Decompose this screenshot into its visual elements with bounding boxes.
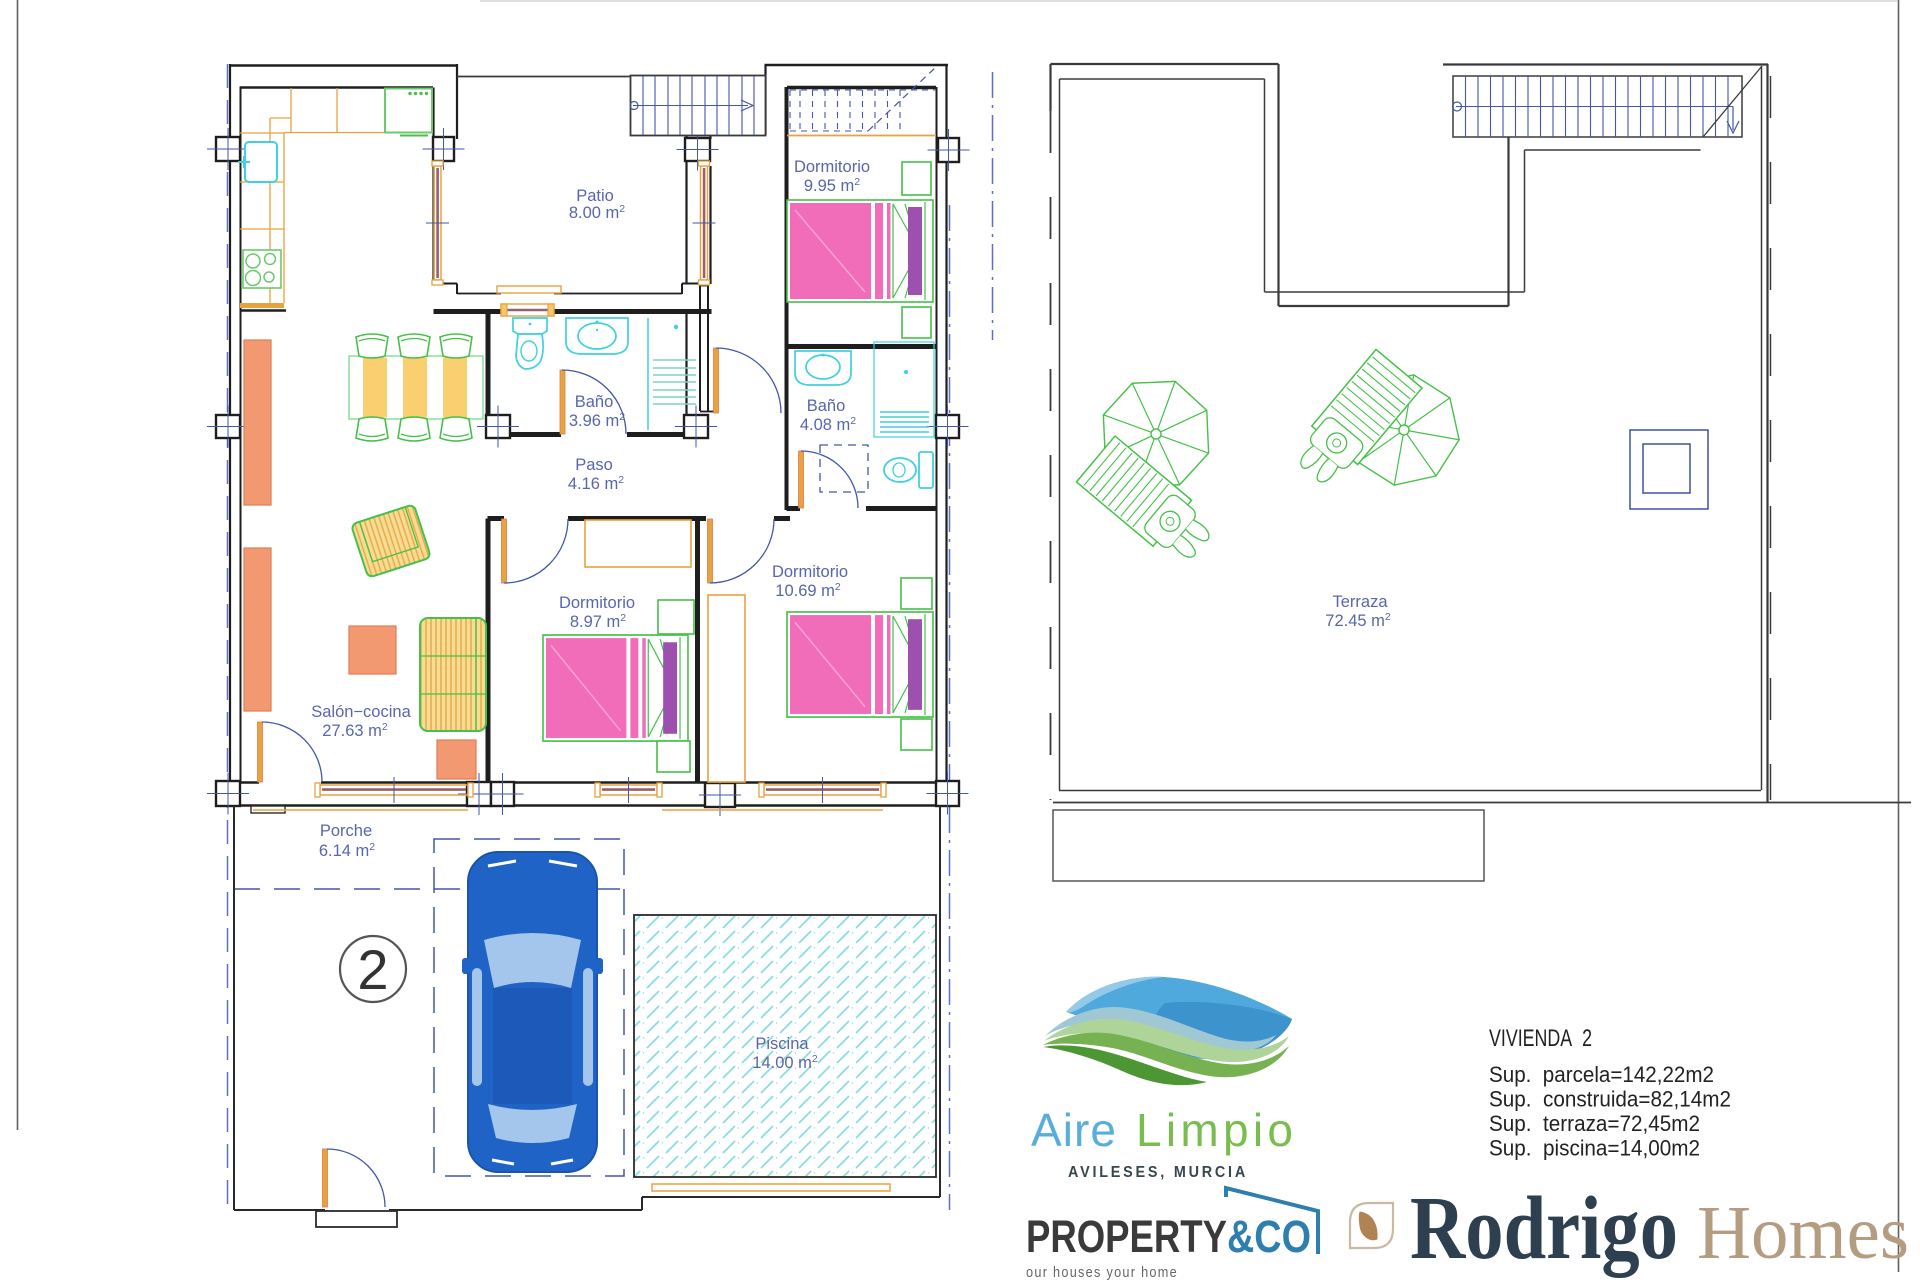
svg-text:3.96 m2: 3.96 m2 [569,411,625,430]
svg-text:our houses your home: our houses your home [1026,1264,1178,1280]
svg-text:PROPERTY: PROPERTY [1026,1211,1227,1262]
svg-text:VIVIENDA 2: VIVIENDA 2 [1489,1025,1592,1052]
svg-text:Aire: Aire [1031,1104,1116,1156]
svg-text:Baño: Baño [575,393,614,411]
svg-text:Baño: Baño [807,397,846,415]
svg-text:Dormitorio: Dormitorio [559,594,635,612]
svg-text:Paso: Paso [575,456,613,474]
svg-text:2: 2 [357,938,388,1001]
svg-text:8.00 m2: 8.00 m2 [569,203,625,222]
svg-text:27.63 m2: 27.63 m2 [322,721,388,740]
svg-text:Piscina: Piscina [755,1035,809,1053]
svg-text:4.08 m2: 4.08 m2 [800,415,856,434]
svg-text:4.16 m2: 4.16 m2 [568,474,624,493]
svg-text:Salón−cocina: Salón−cocina [311,703,411,721]
svg-text:9.95 m2: 9.95 m2 [804,176,860,195]
svg-text:8.97 m2: 8.97 m2 [570,612,626,631]
svg-text:AVILESES, MURCIA: AVILESES, MURCIA [1068,1164,1248,1181]
svg-text:Terraza: Terraza [1332,593,1388,611]
svg-text:Patio: Patio [576,187,614,205]
svg-text:6.14 m2: 6.14 m2 [319,841,375,860]
svg-text:Limpio: Limpio [1136,1104,1293,1156]
svg-text:Homes: Homes [1697,1191,1909,1275]
svg-text:Rodrigo: Rodrigo [1410,1179,1678,1278]
svg-text:Sup. parcela=142,22m2: Sup. parcela=142,22m2 [1489,1062,1714,1087]
svg-text:72.45 m2: 72.45 m2 [1325,611,1391,630]
svg-text:Sup. terraza=72,45m2: Sup. terraza=72,45m2 [1489,1111,1700,1136]
svg-text:Sup. construida=82,14m2: Sup. construida=82,14m2 [1489,1087,1731,1112]
svg-text:14.00 m2: 14.00 m2 [752,1053,818,1072]
svg-text:&CO: &CO [1227,1211,1311,1262]
svg-text:Sup. piscina=14,00m2: Sup. piscina=14,00m2 [1489,1136,1700,1161]
svg-text:Porche: Porche [320,822,372,840]
svg-text:Dormitorio: Dormitorio [772,563,848,581]
svg-text:10.69 m2: 10.69 m2 [775,581,841,600]
svg-text:Dormitorio: Dormitorio [794,158,870,176]
